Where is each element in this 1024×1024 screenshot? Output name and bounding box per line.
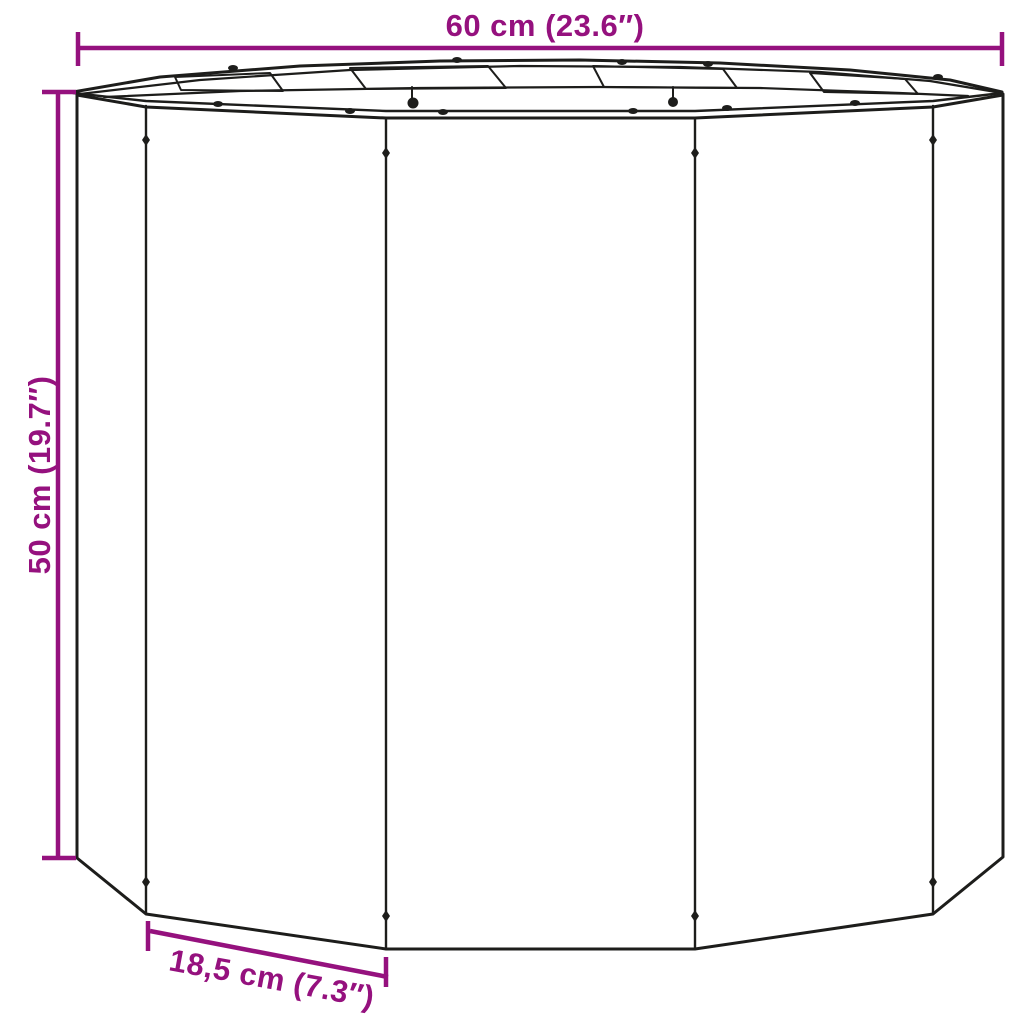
product-dimension-diagram: 60 cm (23.6″) 50 cm (19.7″) 18,5 cm (7.3…: [0, 0, 1024, 1024]
diagram-canvas: 60 cm (23.6″) 50 cm (19.7″) 18,5 cm (7.3…: [0, 0, 1024, 1024]
planter-drawing: [73, 57, 1003, 949]
width-dimension: 60 cm (23.6″): [78, 8, 1002, 66]
rim-clip-right: [668, 87, 678, 107]
rim-clip-left: [408, 87, 419, 109]
width-dimension-label: 60 cm (23.6″): [446, 8, 645, 43]
height-dimension: 50 cm (19.7″): [22, 92, 76, 858]
inner-facet-3: [593, 66, 737, 88]
planter-rim: [73, 57, 1003, 118]
planter-body-outline: [77, 94, 1003, 949]
seam-markers: [142, 134, 937, 922]
rim-front-inner-edge: [73, 93, 1002, 111]
panel-dimension: 18,5 cm (7.3″): [148, 921, 388, 1015]
height-dimension-label: 50 cm (19.7″): [22, 376, 57, 575]
